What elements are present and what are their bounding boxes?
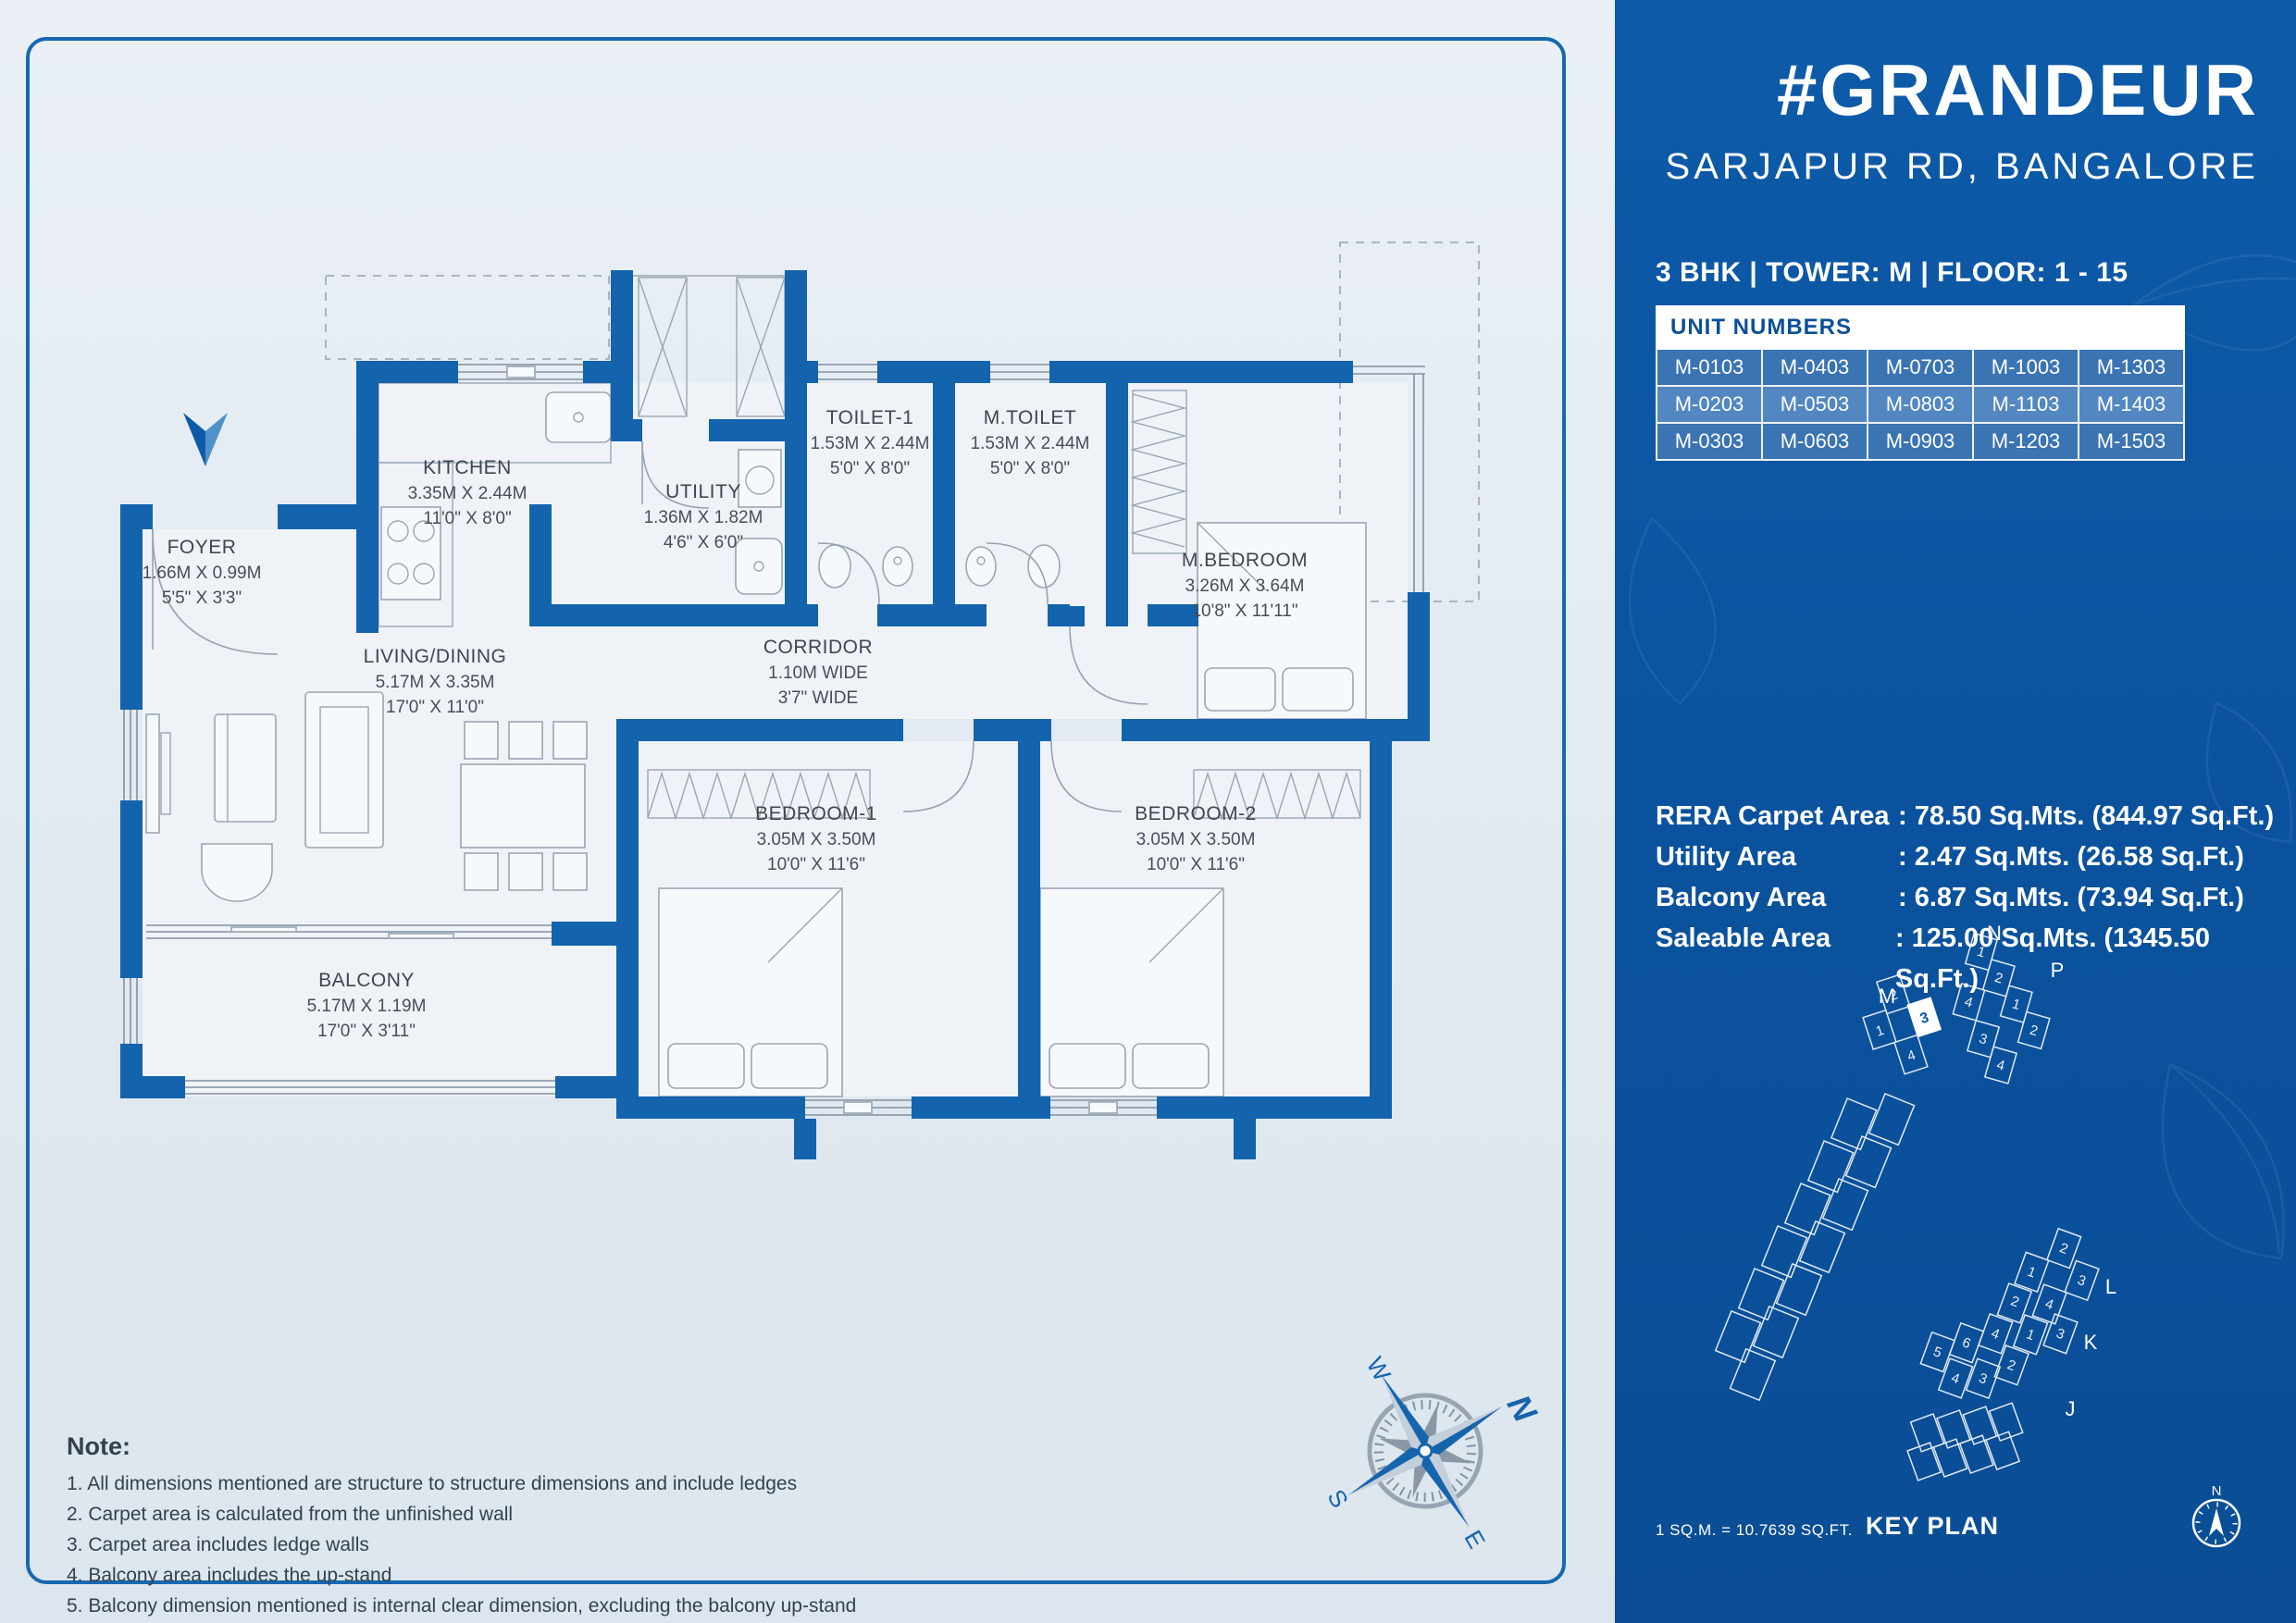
compass-rose: N E S W xyxy=(1304,1330,1546,1572)
room-label-bedroom1: BEDROOM-1 xyxy=(755,803,877,824)
scale-note: 1 SQ.M. = 10.7639 SQ.FT. xyxy=(1656,1521,1853,1540)
room-dim: 5.17M X 1.19M xyxy=(307,997,427,1016)
bld-num: 2 xyxy=(2008,1294,2021,1311)
bld-num: 1 xyxy=(2024,1326,2037,1344)
floor-plan-drawing: FOYER 1.66M X 0.99M 5'5" X 3'3" KITCHEN … xyxy=(0,0,1615,1623)
tower-label-j: J xyxy=(2066,1397,2076,1420)
compass-s: S xyxy=(1322,1484,1354,1512)
unit-cell: M-0903 xyxy=(1868,423,1973,460)
note-item: 1. All dimensions mentioned are structur… xyxy=(67,1468,900,1499)
room-label-kitchen: KITCHEN xyxy=(423,457,512,478)
area-summary: RERA Carpet Area: 78.50 Sq.Mts. (844.97 … xyxy=(1656,796,2296,999)
unit-row: M-0303M-0603M-0903M-1203M-1503 xyxy=(1657,423,2184,460)
unit-numbers-table: UNIT NUMBERS M-0103M-0403M-0703M-1003M-1… xyxy=(1656,305,2185,461)
unit-cell: M-0203 xyxy=(1657,386,1762,423)
compass-n: N xyxy=(1500,1388,1545,1429)
area-label: Balcony Area xyxy=(1656,877,1898,918)
room-dim: 5'5" X 3'3" xyxy=(162,588,242,608)
floor-plan-sheet: FOYER 1.66M X 0.99M 5'5" X 3'3" KITCHEN … xyxy=(0,0,1615,1623)
room-dim: 5'0" X 8'0" xyxy=(990,459,1070,478)
room-dim: 3'7" WIDE xyxy=(778,688,858,708)
area-label: RERA Carpet Area xyxy=(1656,796,1898,836)
room-dim: 3.05M X 3.50M xyxy=(757,830,876,849)
bld-num: 4 xyxy=(2043,1295,2056,1313)
unit-row: M-0203M-0503M-0803M-1103M-1403 xyxy=(1657,386,2184,423)
entry-arrow xyxy=(183,413,228,466)
note-item: 4. Balcony area includes the up-stand xyxy=(67,1560,900,1591)
area-value: : 125.00 Sq.Mts. (1345.50 Sq.Ft.) xyxy=(1895,918,2296,999)
area-label: Utility Area xyxy=(1656,836,1898,877)
key-plan-label: KEY PLAN xyxy=(1835,1512,2029,1541)
unit-cell: M-1503 xyxy=(2079,423,2184,460)
unit-cell: M-0403 xyxy=(1762,349,1868,386)
room-dim: 4'6" X 6'0" xyxy=(664,533,743,552)
room-label-mbedroom: M.BEDROOM xyxy=(1182,550,1308,571)
unit-cell: M-1303 xyxy=(2079,349,2184,386)
bld-num: 3 xyxy=(2054,1325,2066,1343)
note-item: 5. Balcony dimension mentioned is intern… xyxy=(67,1591,900,1621)
bld-num: 4 xyxy=(1989,1325,2002,1343)
compass-w: W xyxy=(1361,1352,1396,1386)
mini-compass-n: N xyxy=(2212,1483,2222,1499)
note-item: 3. Carpet area includes ledge walls xyxy=(67,1530,900,1560)
room-dim: 1.53M X 2.44M xyxy=(811,434,930,453)
bld-num: 5 xyxy=(1931,1344,1944,1361)
room-dim: 10'0" X 11'6" xyxy=(767,855,865,874)
room-dim: 3.35M X 2.44M xyxy=(408,484,527,503)
room-label-utility: UTILITY xyxy=(665,481,741,502)
bld-num: 2 xyxy=(2057,1240,2070,1258)
room-dim: 10'0" X 11'6" xyxy=(1147,855,1245,874)
notes-block: Note: 1. All dimensions mentioned are st… xyxy=(67,1432,900,1621)
bld-num: 6 xyxy=(1960,1334,1973,1352)
room-label-living: LIVING/DINING xyxy=(364,646,507,667)
area-row: Balcony Area: 6.87 Sq.Mts. (73.94 Sq.Ft.… xyxy=(1656,877,2296,918)
unit-table-body: M-0103M-0403M-0703M-1003M-1303M-0203M-05… xyxy=(1657,349,2184,460)
unit-cell: M-0503 xyxy=(1762,386,1868,423)
bld-num: 1 xyxy=(1874,1022,1886,1040)
room-dim: 5.17M X 3.35M xyxy=(376,673,495,692)
info-panel: 1 2 3 4 1 2 4 1 2 xyxy=(1615,0,2296,1623)
bld-num: 2 xyxy=(2005,1357,2018,1374)
area-row: Utility Area: 2.47 Sq.Mts. (26.58 Sq.Ft.… xyxy=(1656,836,2296,877)
bld-num: 4 xyxy=(1949,1370,1962,1388)
area-label: Saleable Area xyxy=(1656,918,1895,999)
unit-cell: M-1003 xyxy=(1973,349,2079,386)
unit-cell: M-1203 xyxy=(1973,423,2079,460)
room-dim: 11'0" X 8'0" xyxy=(423,509,511,528)
room-dim: 10'8" X 11'11" xyxy=(1191,601,1297,621)
room-label-bedroom2: BEDROOM-2 xyxy=(1135,803,1257,824)
unit-cell: M-0103 xyxy=(1657,349,1762,386)
room-dim: 1.53M X 2.44M xyxy=(971,434,1090,453)
bld-num: 3 xyxy=(1978,1031,1990,1048)
config-line: 3 BHK | TOWER: M | FLOOR: 1 - 15 xyxy=(1656,257,2128,289)
room-label-mtoilet: M.TOILET xyxy=(984,407,1076,428)
bld-num: 4 xyxy=(1905,1047,1917,1065)
tower-label-l: L xyxy=(2105,1275,2116,1298)
unit-row: M-0103M-0403M-0703M-1003M-1303 xyxy=(1657,349,2184,386)
tower-label-k: K xyxy=(2084,1331,2098,1354)
key-plan-chain xyxy=(1705,1071,1915,1412)
unit-cell: M-0703 xyxy=(1868,349,1973,386)
project-location: SARJAPUR RD, BANGALORE xyxy=(1666,146,2259,188)
area-value: : 78.50 Sq.Mts. (844.97 Sq.Ft.) xyxy=(1898,796,2274,836)
unit-cell: M-0603 xyxy=(1762,423,1868,460)
bld-num: 3 xyxy=(2076,1272,2089,1290)
unit-cell: M-1403 xyxy=(2079,386,2184,423)
room-dim: 1.10M WIDE xyxy=(768,663,868,683)
bld-num: 1 xyxy=(2025,1264,2038,1282)
area-row: Saleable Area: 125.00 Sq.Mts. (1345.50 S… xyxy=(1656,918,2296,999)
project-title: #GRANDEUR xyxy=(1777,48,2259,132)
mini-compass: N xyxy=(2193,1483,2240,1546)
bld-num: 4 xyxy=(1994,1057,2006,1074)
key-plan-bottom-chain xyxy=(1898,1387,2031,1496)
compass-e: E xyxy=(1458,1525,1491,1553)
unit-cell: M-0803 xyxy=(1868,386,1973,423)
room-label-corridor: CORRIDOR xyxy=(763,637,873,658)
area-value: : 6.87 Sq.Mts. (73.94 Sq.Ft.) xyxy=(1898,877,2244,918)
notes-title: Note: xyxy=(67,1432,900,1461)
room-dim: 3.26M X 3.64M xyxy=(1185,576,1305,596)
room-dim: 17'0" X 11'0" xyxy=(386,698,484,717)
area-value: : 2.47 Sq.Mts. (26.58 Sq.Ft.) xyxy=(1898,836,2244,877)
note-item: 2. Carpet area is calculated from the un… xyxy=(67,1499,900,1530)
unit-table-header: UNIT NUMBERS xyxy=(1657,306,2184,349)
bld-num: 2 xyxy=(2028,1022,2040,1040)
room-dim: 1.36M X 1.82M xyxy=(644,508,763,527)
room-dim: 17'0" X 3'11" xyxy=(317,1022,416,1041)
room-label-toilet1: TOILET-1 xyxy=(826,407,914,428)
room-dim: 1.66M X 0.99M xyxy=(143,564,262,583)
bld-num: 3 xyxy=(1977,1370,1990,1388)
room-dim: 5'0" X 8'0" xyxy=(830,459,910,478)
unit-cell: M-1103 xyxy=(1973,386,2079,423)
unit-cell: M-0303 xyxy=(1657,423,1762,460)
room-dim: 3.05M X 3.50M xyxy=(1136,830,1256,849)
area-row: RERA Carpet Area: 78.50 Sq.Mts. (844.97 … xyxy=(1656,796,2296,836)
room-label-balcony: BALCONY xyxy=(318,970,415,991)
room-label-foyer: FOYER xyxy=(168,537,237,558)
key-plan-buildings: 1 2 3 4 1 2 4 1 2 xyxy=(1705,922,2116,1496)
